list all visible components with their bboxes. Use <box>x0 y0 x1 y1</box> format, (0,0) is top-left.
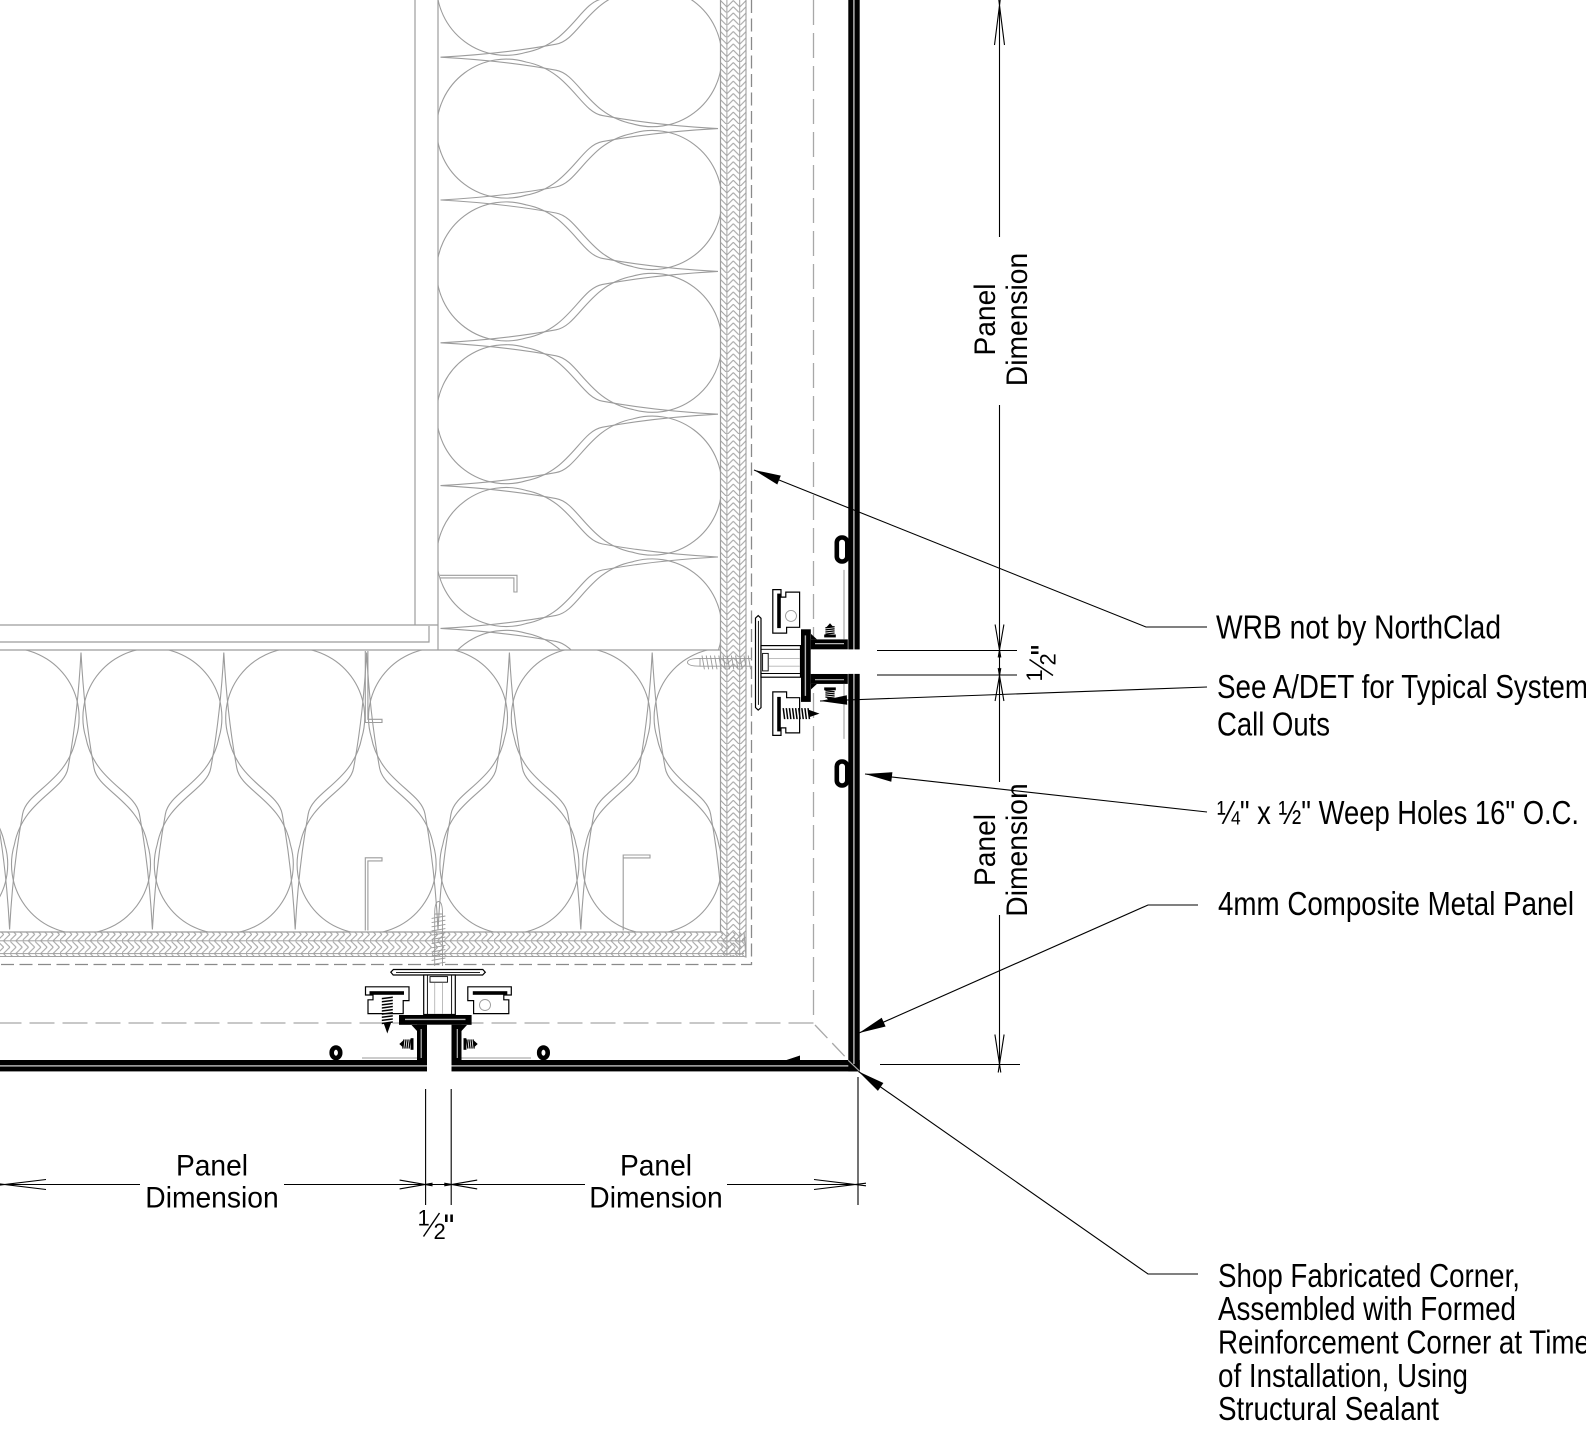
svg-text:4mm Composite Metal Panel: 4mm Composite Metal Panel <box>1218 885 1574 922</box>
svg-text:See A/DET for Typical System: See A/DET for Typical System <box>1217 668 1586 705</box>
svg-text:2: 2 <box>1036 653 1061 665</box>
svg-text:Panel: Panel <box>176 1149 248 1182</box>
svg-text:of Installation, Using: of Installation, Using <box>1218 1357 1468 1394</box>
svg-text:2: 2 <box>434 1219 446 1244</box>
svg-text:Reinforcement Corner at Time: Reinforcement Corner at Time <box>1218 1324 1586 1361</box>
svg-text:1: 1 <box>418 1205 430 1230</box>
svg-text:WRB not by NorthClad: WRB not by NorthClad <box>1216 609 1501 646</box>
svg-text:Dimension: Dimension <box>145 1182 278 1215</box>
svg-text:Shop Fabricated Corner,: Shop Fabricated Corner, <box>1218 1257 1520 1294</box>
svg-text:Dimension: Dimension <box>589 1182 722 1215</box>
svg-text:Panel: Panel <box>620 1149 692 1182</box>
svg-text:1: 1 <box>1022 669 1047 681</box>
svg-text:Structural Sealant: Structural Sealant <box>1218 1390 1439 1427</box>
svg-text:Call Outs: Call Outs <box>1217 706 1330 743</box>
svg-text:¼" x ½" Weep Holes 16" O.C.: ¼" x ½" Weep Holes 16" O.C. <box>1217 794 1579 831</box>
svg-text:Assembled with Formed: Assembled with Formed <box>1218 1290 1516 1327</box>
